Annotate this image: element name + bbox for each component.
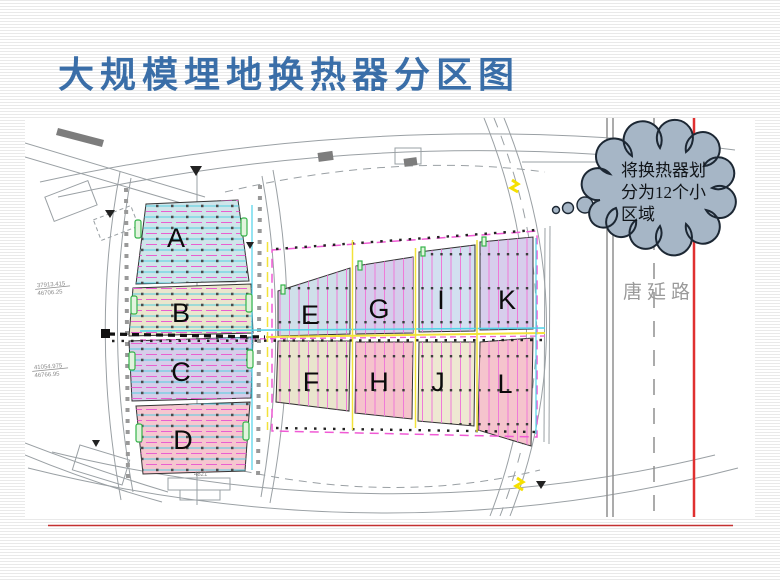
zone-j-label: J — [431, 367, 445, 397]
zone-g-label: G — [368, 294, 389, 324]
zone-c-label: C — [171, 357, 191, 387]
zone-b-label: B — [172, 298, 190, 328]
cloud-text-line2: 分为12个小 — [621, 183, 706, 202]
zone-a-label: A — [167, 223, 185, 253]
yellow-marker-bottom — [516, 478, 523, 490]
cloud-text-line3: 区域 — [621, 205, 655, 224]
cloud-text-line1: 将换热器划 — [621, 161, 706, 180]
zone-d-label: D — [173, 425, 193, 455]
site-plan-image: A B C D E F G H I J K L 唐延路 — [0, 0, 780, 580]
slide: { "slide": { "title": "大规模埋地换热器分区图" }, "… — [0, 0, 780, 580]
zone-f-label: F — [303, 367, 320, 397]
dim-text-3: 4821 — [194, 472, 208, 478]
thought-trail-dot-small — [553, 207, 560, 214]
thought-trail-dot-medium — [563, 203, 574, 214]
yellow-marker-top — [511, 180, 518, 192]
zone-l-label: L — [497, 369, 512, 399]
zone-e-label: E — [301, 300, 319, 330]
zone-i-label: I — [437, 285, 445, 315]
zone-k-label: K — [498, 285, 516, 315]
road-name-label: 唐延路 — [623, 281, 695, 303]
zone-h-label: H — [369, 367, 389, 397]
